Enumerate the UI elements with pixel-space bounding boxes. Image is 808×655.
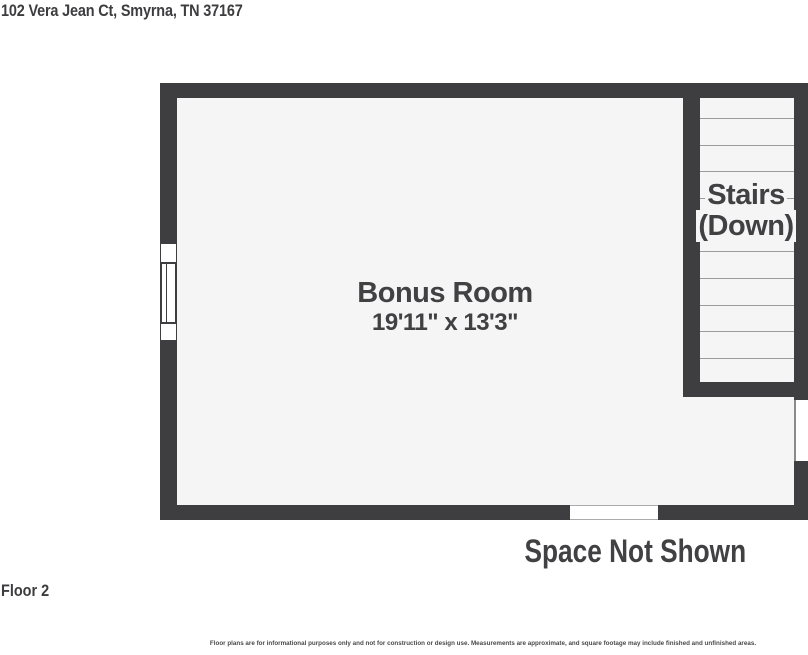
window-glass: [160, 262, 177, 324]
stair-tread: [700, 358, 794, 359]
window-mullion: [166, 264, 167, 322]
window-symbol: [160, 244, 177, 340]
right-wall-opening: [794, 400, 808, 461]
stairs-label-line2: (Down): [686, 211, 806, 242]
bonus-room-label: Bonus Room 19'11" x 13'3": [320, 278, 570, 336]
room-name-label: Bonus Room: [320, 278, 570, 308]
stair-tread: [700, 171, 794, 172]
address-title: 102 Vera Jean Ct, Smyrna, TN 37167: [1, 0, 243, 22]
stairs-bottom-wall: [683, 382, 794, 397]
stair-tread: [700, 278, 794, 279]
stair-tread: [700, 145, 794, 146]
stairs-divider-wall: [683, 98, 700, 397]
stair-tread: [700, 305, 794, 306]
disclaimer-text: Floor plans are for informational purpos…: [151, 639, 808, 648]
space-not-shown-label: Space Not Shown: [525, 533, 730, 570]
floor-label: Floor 2: [1, 581, 49, 601]
stair-tread: [700, 331, 794, 332]
stair-tread: [700, 251, 794, 252]
stairs-label-line1: Stairs: [686, 180, 806, 211]
doorway-opening: [570, 505, 658, 520]
stairs-label: Stairs (Down): [686, 180, 806, 242]
stair-tread: [700, 118, 794, 119]
room-dimensions-label: 19'11" x 13'3": [320, 310, 570, 336]
floorplan-page: 102 Vera Jean Ct, Smyrna, TN 37167 Bonus…: [0, 0, 808, 655]
